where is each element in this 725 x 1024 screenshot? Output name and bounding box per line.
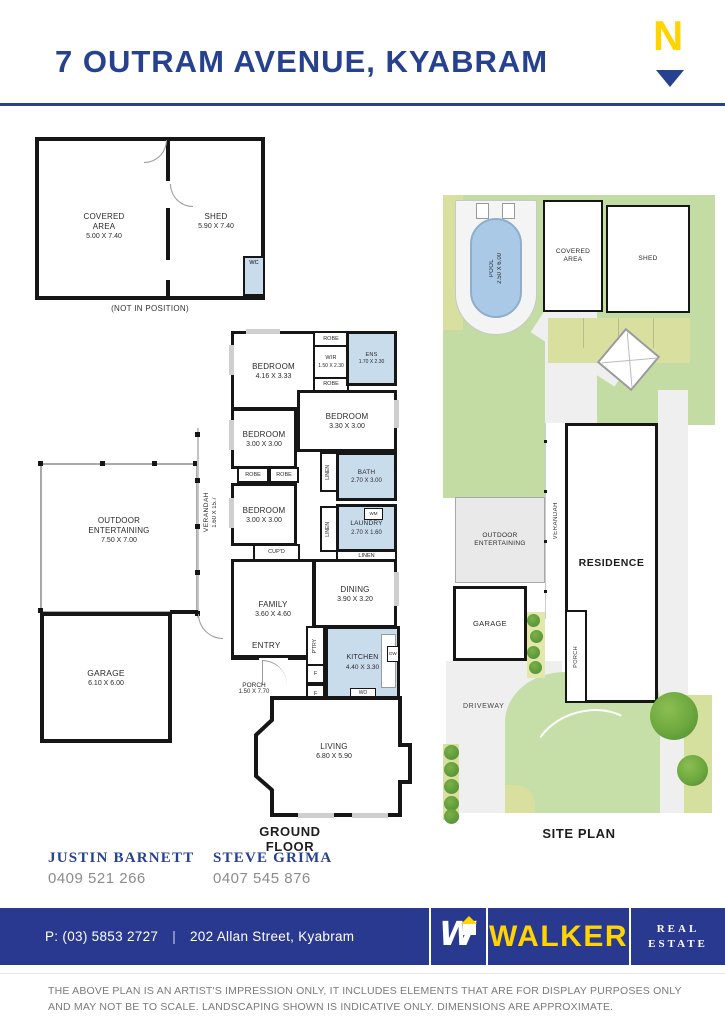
room-name: OUTDOOR ENTERTAINING bbox=[74, 516, 164, 536]
cupd-label: CUP'D bbox=[268, 549, 285, 555]
footer-phone: P: (03) 5853 2727 bbox=[45, 929, 158, 944]
bush bbox=[527, 646, 540, 659]
plan-page: 7 OUTRAM AVENUE, KYABRAM N COVERED AREA … bbox=[0, 0, 725, 1024]
room-wir: WIR 1.50 X 2.30 bbox=[313, 345, 349, 379]
agent-phone: 0409 521 266 bbox=[48, 870, 194, 887]
room-name: DINING bbox=[340, 585, 369, 595]
room-dims: 3.90 X 3.20 bbox=[337, 596, 373, 603]
site-garage: GARAGE bbox=[453, 586, 527, 661]
room-name: BATH bbox=[358, 469, 376, 477]
bed-divider bbox=[583, 318, 584, 348]
window bbox=[229, 498, 234, 528]
robe-label: ROBE bbox=[323, 381, 339, 387]
outbuilding-inner-wall bbox=[166, 141, 170, 181]
room-garage: GARAGE 6.10 X 6.00 bbox=[40, 612, 172, 743]
room-dims: 5.00 X 7.40 bbox=[48, 233, 160, 240]
agent-name: STEVE GRIMA bbox=[213, 850, 332, 867]
site-shed: SHED bbox=[606, 205, 690, 313]
lawn bbox=[443, 330, 545, 498]
house-icon bbox=[463, 924, 476, 935]
agent-justin: JUSTIN BARNETT 0409 521 266 bbox=[48, 850, 194, 887]
window bbox=[394, 400, 399, 428]
footer-rule bbox=[0, 973, 725, 974]
room-bedroom3: BEDROOM 3.00 X 3.00 bbox=[231, 408, 297, 469]
post bbox=[195, 524, 200, 529]
post bbox=[38, 461, 43, 466]
bush bbox=[444, 745, 459, 760]
robe-label: ROBE bbox=[276, 472, 292, 478]
entry-wall bbox=[288, 656, 308, 660]
site-label: GARAGE bbox=[473, 619, 507, 629]
entry-label: ENTRY bbox=[252, 641, 280, 650]
room-name: LAUNDRY bbox=[350, 520, 382, 528]
room-dims: 1.50 X 2.30 bbox=[318, 363, 344, 369]
bush bbox=[444, 762, 459, 777]
disclaimer-line2: AND MAY NOT BE TO SCALE. LANDSCAPING SHO… bbox=[48, 1001, 613, 1013]
agent-steve: STEVE GRIMA 0407 545 876 bbox=[213, 850, 332, 887]
brand-text: WALKER bbox=[489, 920, 628, 954]
room-bath: BATH 2.70 X 3.00 bbox=[336, 452, 397, 501]
room-name: WC bbox=[249, 260, 258, 266]
bush bbox=[529, 661, 542, 674]
site-label: PORCH bbox=[573, 646, 579, 668]
room-dims: 1.60 X 15.7 bbox=[212, 497, 218, 528]
verandah-post bbox=[544, 440, 547, 443]
compass-n-label: N bbox=[653, 12, 683, 60]
robe-label: ROBE bbox=[245, 472, 261, 478]
site-porch: PORCH bbox=[565, 610, 587, 703]
site-covered-area: COVERED AREA bbox=[543, 200, 603, 312]
room-label-outdoor: OUTDOOR ENTERTAINING 7.50 X 7.00 bbox=[58, 516, 180, 544]
agent-phone: 0407 545 876 bbox=[213, 870, 332, 887]
post bbox=[100, 461, 105, 466]
site-outdoor: OUTDOOR ENTERTAINING bbox=[455, 497, 545, 583]
site-label: SHED bbox=[638, 255, 657, 263]
window bbox=[229, 345, 234, 375]
window bbox=[298, 813, 334, 818]
room-name: BEDROOM bbox=[252, 362, 295, 372]
room-label-verandah: VERANDAH 1.60 X 15.7 bbox=[203, 455, 218, 570]
room-label-shed: SHED 5.90 X 7.40 bbox=[178, 212, 254, 230]
estate-text: ESTATE bbox=[648, 937, 708, 951]
post bbox=[195, 432, 200, 437]
room-name: ENS bbox=[366, 352, 378, 359]
window bbox=[246, 329, 280, 334]
tree bbox=[677, 755, 708, 786]
compass-arrow-icon bbox=[656, 70, 684, 87]
footer-address: 202 Allan Street, Kyabram bbox=[190, 929, 354, 944]
room-dims: 2.70 X 1.60 bbox=[351, 530, 382, 536]
post bbox=[152, 461, 157, 466]
walker-logo-mark: W bbox=[431, 908, 486, 965]
verandah-post bbox=[544, 590, 547, 593]
room-dims: 3.00 X 3.00 bbox=[246, 517, 282, 524]
door-arc bbox=[198, 614, 223, 639]
not-in-position-caption: (NOT IN POSITION) bbox=[90, 304, 210, 313]
page-title: 7 OUTRAM AVENUE, KYABRAM bbox=[55, 44, 548, 80]
room-dims: 3.60 X 4.60 bbox=[255, 611, 291, 618]
driveway-label: DRIVEWAY bbox=[463, 703, 504, 710]
room-name: BEDROOM bbox=[243, 506, 286, 516]
room-bedroom2: BEDROOM 3.30 X 3.00 bbox=[297, 390, 397, 452]
f-label: F bbox=[314, 671, 317, 677]
robe-label: ROBE bbox=[323, 336, 339, 342]
site-label: COVERED AREA bbox=[553, 248, 593, 265]
room-name: SHED bbox=[178, 212, 254, 222]
bush bbox=[444, 809, 459, 824]
dishwasher: DW bbox=[387, 646, 399, 662]
robe-cupboard: ROBE bbox=[237, 467, 269, 483]
room-dining: DINING 3.90 X 3.20 bbox=[313, 559, 397, 628]
room-name: KITCHEN bbox=[346, 654, 378, 663]
real-estate-wordmark: REAL ESTATE bbox=[631, 908, 725, 965]
entry-wall bbox=[231, 656, 259, 660]
room-name: BEDROOM bbox=[326, 412, 369, 422]
post bbox=[195, 570, 200, 575]
outbuilding-inner-wall bbox=[166, 208, 170, 260]
room-name: VERANDAH bbox=[203, 492, 210, 532]
house-roof-icon bbox=[461, 916, 477, 924]
room-name: FAMILY bbox=[258, 600, 287, 610]
verandah-post bbox=[544, 490, 547, 493]
washing-machine: WM bbox=[364, 508, 383, 520]
bush bbox=[530, 630, 543, 643]
room-dims: 3.00 X 3.00 bbox=[246, 441, 282, 448]
verandah-post bbox=[544, 540, 547, 543]
room-name: WIR bbox=[325, 355, 336, 362]
room-name: COVERED AREA bbox=[74, 212, 134, 232]
bush bbox=[527, 614, 540, 627]
room-name: GARAGE bbox=[87, 668, 125, 679]
pool-step bbox=[502, 203, 515, 219]
dw-label: DW bbox=[389, 652, 397, 657]
room-bedroom4: BEDROOM 3.00 X 3.00 bbox=[231, 483, 297, 546]
robe-cupboard: ROBE bbox=[269, 467, 299, 483]
garage-link-wall bbox=[170, 610, 198, 614]
pool: POOL 2.50 X 6.00 bbox=[470, 218, 522, 318]
footer-contact: P: (03) 5853 2727 | 202 Allan Street, Ky… bbox=[45, 908, 354, 965]
site-verandah: VERANDAH bbox=[545, 423, 565, 619]
bush bbox=[444, 779, 459, 794]
disclaimer-line1: THE ABOVE PLAN IS AN ARTIST'S IMPRESSION… bbox=[48, 985, 682, 997]
room-wc: WC bbox=[243, 256, 265, 296]
wm-label: WM bbox=[370, 512, 378, 517]
window bbox=[229, 420, 234, 450]
siteplan: POOL 2.50 X 6.00 COVERED AREA SHED DRIVE… bbox=[443, 195, 715, 820]
header-rule bbox=[0, 103, 725, 106]
site-label: OUTDOOR ENTERTAINING bbox=[465, 532, 535, 549]
footer-divider: | bbox=[172, 929, 176, 944]
room-dims: 4.16 X 3.33 bbox=[256, 373, 292, 380]
tree bbox=[650, 692, 698, 740]
room-name: LIVING bbox=[293, 742, 375, 752]
room-dims: 4.40 X 3.30 bbox=[346, 664, 379, 671]
site-plan-caption: SITE PLAN bbox=[524, 826, 634, 841]
bed-divider bbox=[653, 318, 654, 348]
linen-label: LINEN bbox=[326, 522, 332, 537]
window bbox=[352, 813, 388, 818]
post bbox=[195, 478, 200, 483]
window bbox=[394, 572, 399, 606]
walker-wordmark: WALKER bbox=[488, 908, 629, 965]
pool-name: POOL bbox=[489, 259, 495, 277]
real-text: REAL bbox=[657, 922, 700, 936]
room-ens: ENS 1.70 X 2.30 bbox=[346, 331, 397, 386]
outbuilding-inner-wall bbox=[166, 280, 170, 296]
pantry-cupboard: P'TRY bbox=[306, 626, 325, 666]
room-dims: 3.30 X 3.00 bbox=[329, 423, 365, 430]
site-label: RESIDENCE bbox=[579, 557, 645, 569]
pool-step bbox=[476, 203, 489, 219]
pool-dims: 2.50 X 6.00 bbox=[497, 253, 503, 284]
room-label-living: LIVING 6.80 X 5.90 bbox=[293, 742, 375, 760]
room-name: BEDROOM bbox=[243, 430, 286, 440]
ptry-label: P'TRY bbox=[313, 639, 319, 653]
room-dims: 5.90 X 7.40 bbox=[178, 223, 254, 230]
room-dims: 7.50 X 7.00 bbox=[58, 537, 180, 544]
linen-label: LINEN bbox=[326, 465, 332, 480]
room-dims: 2.70 X 3.00 bbox=[351, 478, 382, 484]
room-label-covered-area: COVERED AREA 5.00 X 7.40 bbox=[48, 212, 160, 240]
agent-name: JUSTIN BARNETT bbox=[48, 850, 194, 867]
room-dims: 6.80 X 5.90 bbox=[293, 753, 375, 760]
site-label: VERANDAH bbox=[553, 502, 559, 539]
verandah-line bbox=[197, 428, 199, 618]
room-dims: 1.70 X 2.30 bbox=[359, 359, 385, 365]
fridge-space: F bbox=[306, 664, 325, 684]
footer-bar: P: (03) 5853 2727 | 202 Allan Street, Ky… bbox=[0, 908, 725, 965]
room-dims: 6.10 X 6.00 bbox=[88, 680, 124, 687]
